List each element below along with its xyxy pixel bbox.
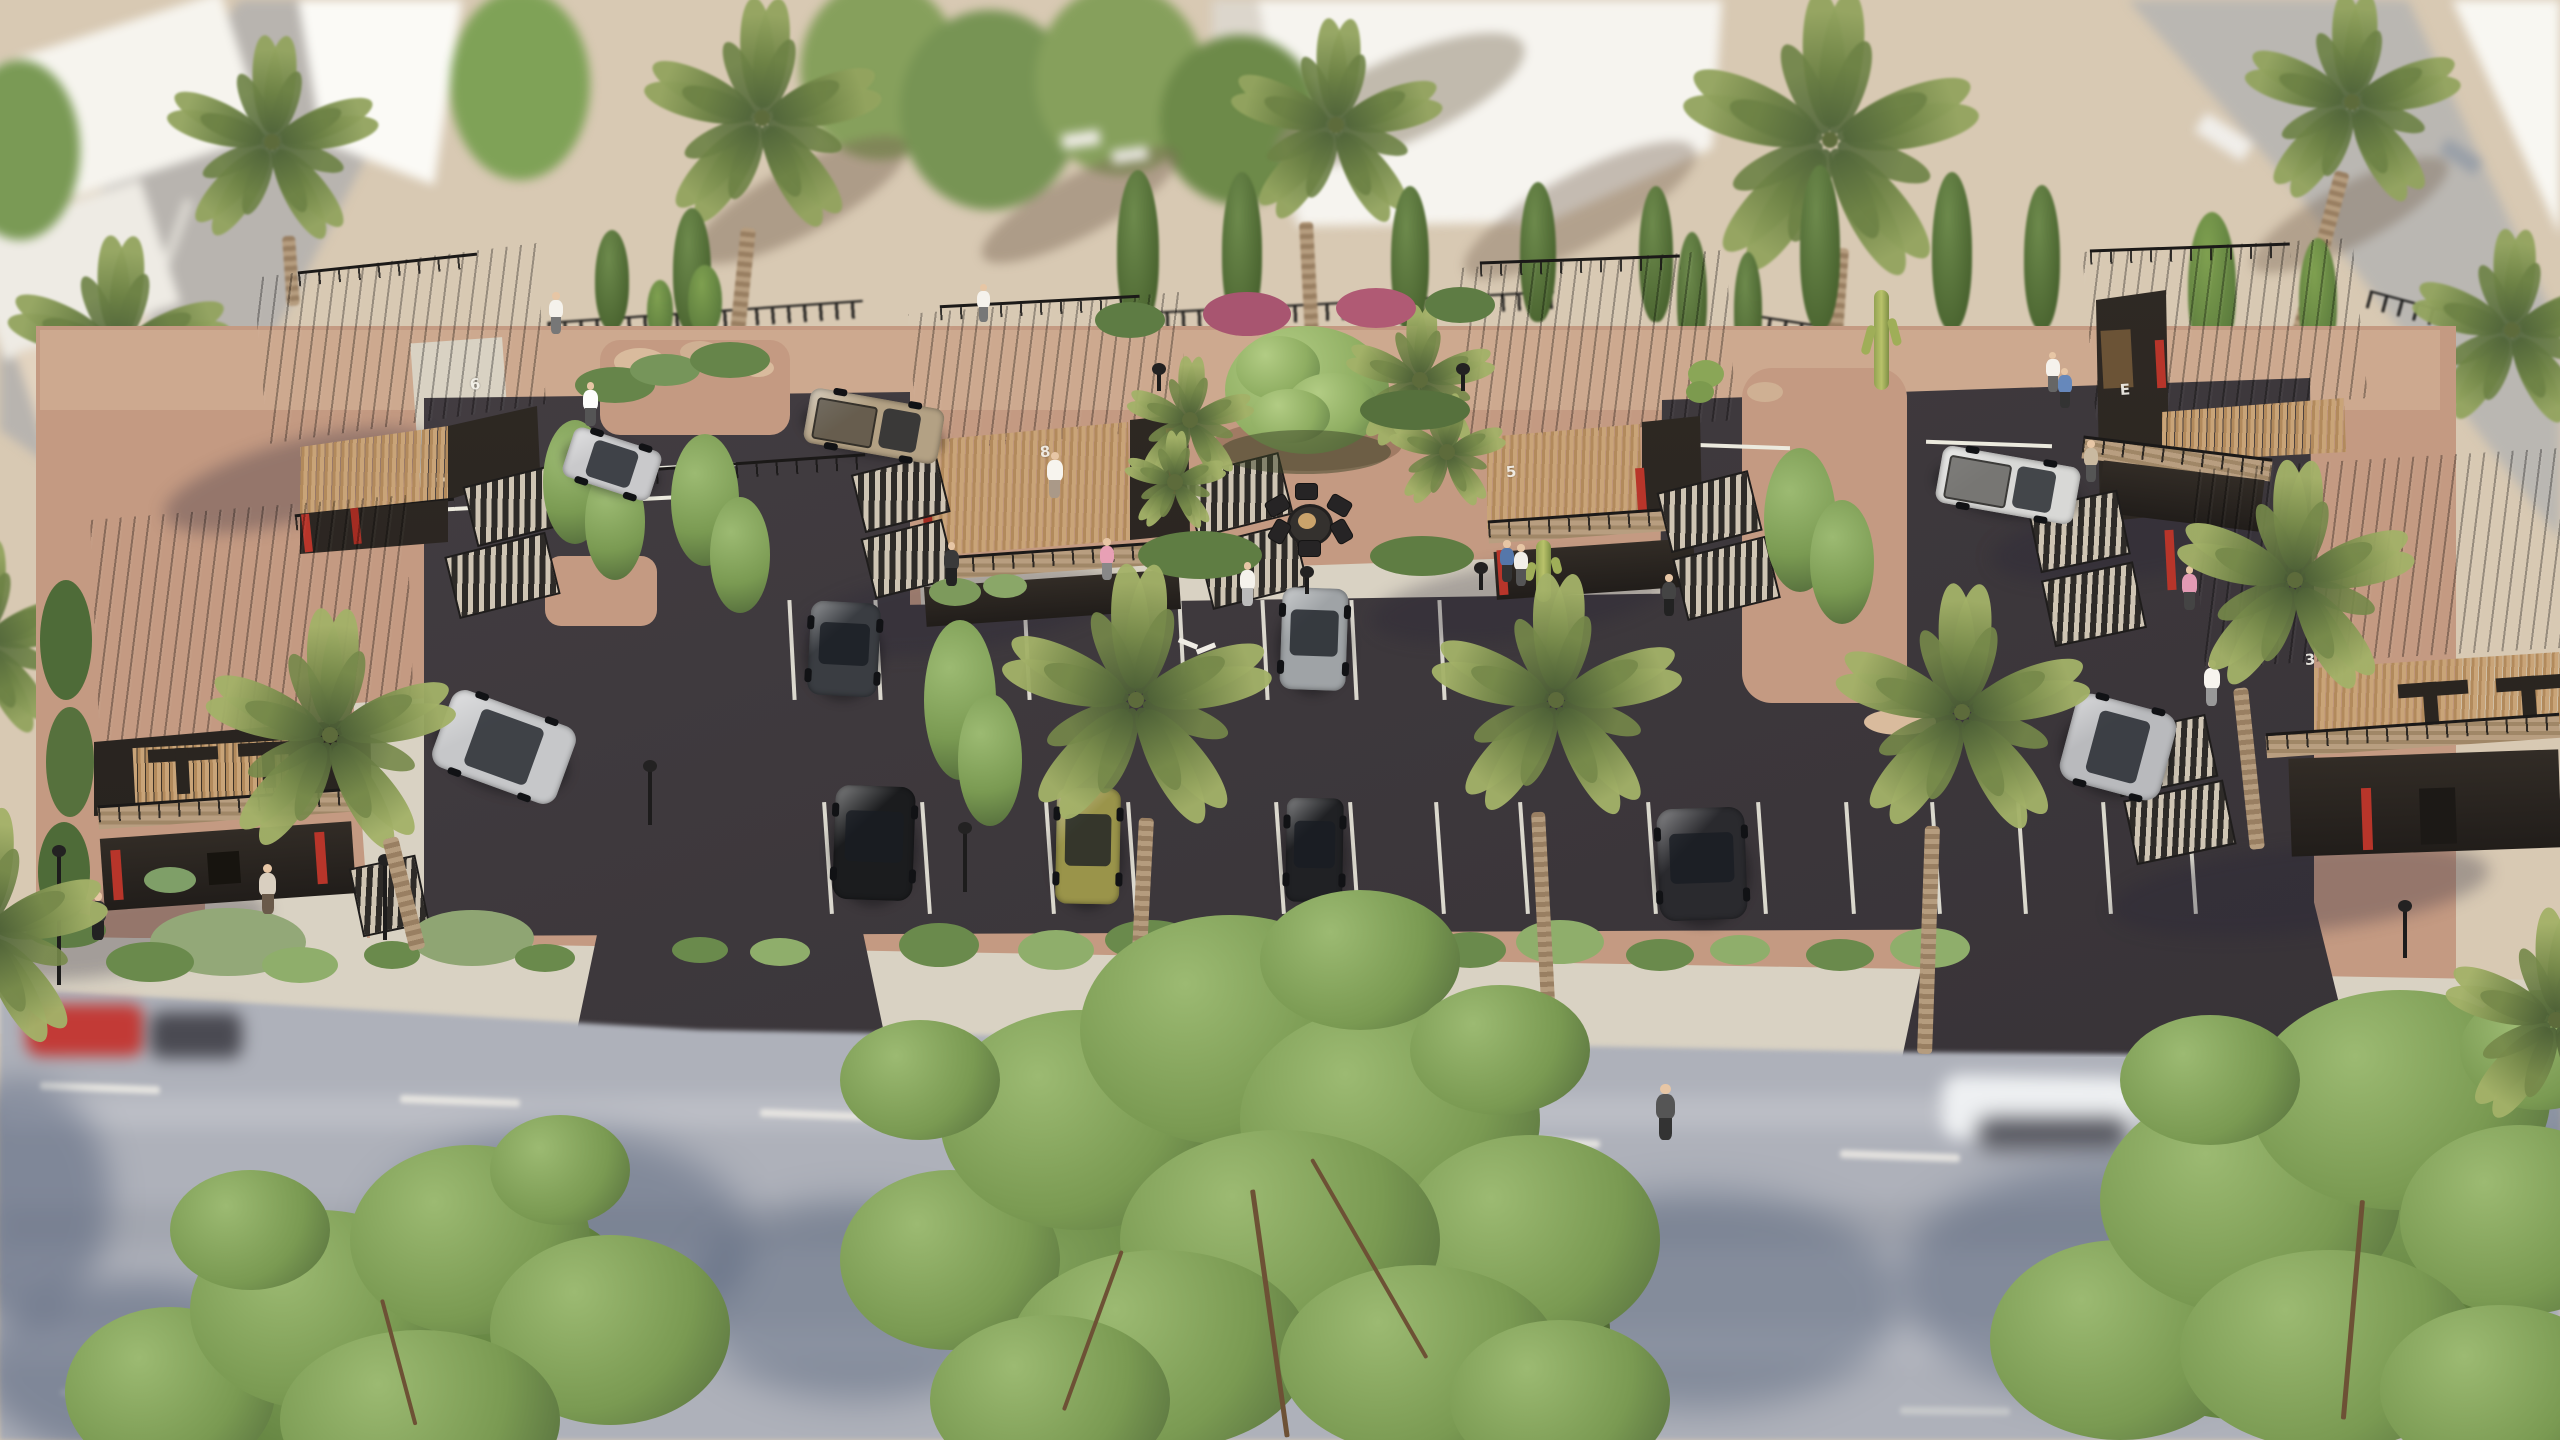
unit-number-glyph: 5 (1505, 461, 1537, 486)
unit-number-glyph: E (2119, 379, 2150, 403)
unit-number-glyph: 6 (469, 372, 502, 398)
architectural-rendering: 685E3 (0, 0, 2560, 1440)
unit-number-glyph: 8 (1039, 441, 1071, 466)
unit-number-glyph: 3 (2304, 649, 2335, 673)
glyph-layer: 685E3 (0, 0, 2560, 1440)
